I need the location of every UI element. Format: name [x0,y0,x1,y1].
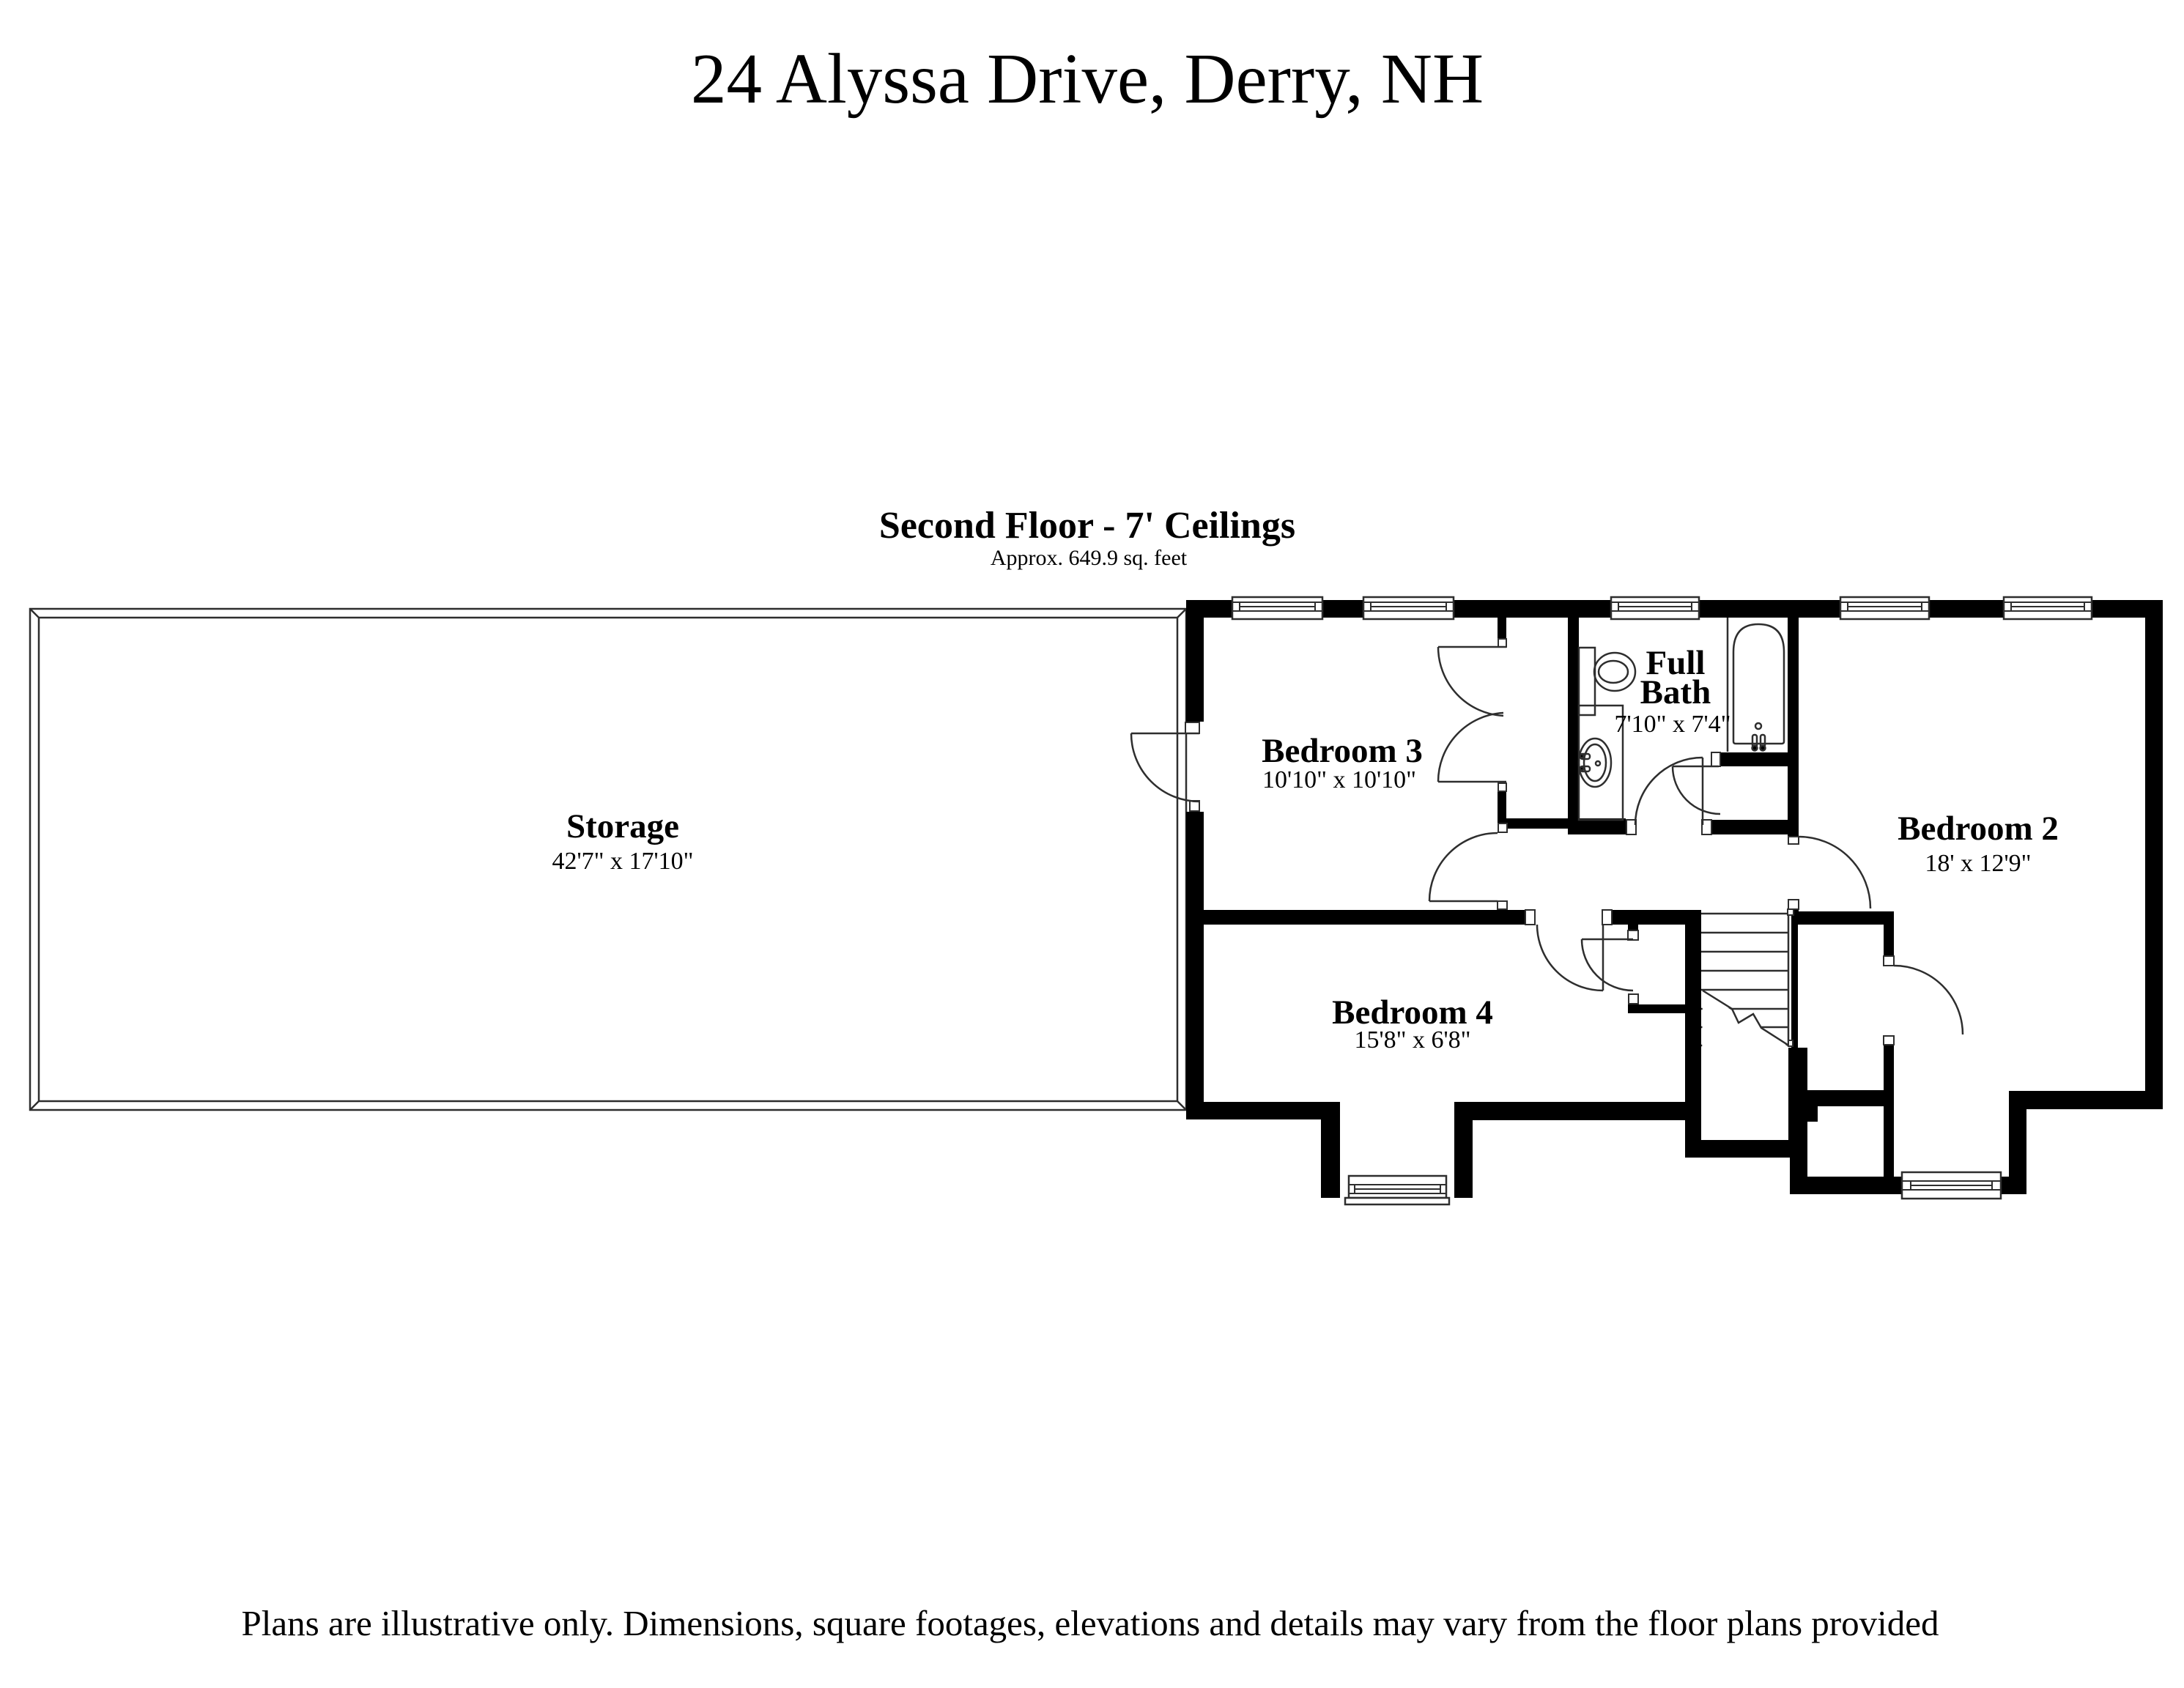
svg-text:7'10" x 7'4": 7'10" x 7'4" [1614,711,1730,738]
svg-text:Bath: Bath [1640,673,1711,711]
svg-text:Bedroom 2: Bedroom 2 [1898,810,2059,848]
svg-text:10'10" x 10'10": 10'10" x 10'10" [1262,766,1416,793]
svg-text:Bedroom 3: Bedroom 3 [1262,732,1423,770]
svg-text:Approx. 649.9 sq. feet: Approx. 649.9 sq. feet [991,546,1188,570]
svg-text:Plans are illustrative only. D: Plans are illustrative only. Dimensions,… [242,1603,1939,1643]
svg-text:42'7" x 17'10": 42'7" x 17'10" [552,848,693,875]
svg-text:Storage: Storage [566,807,679,845]
svg-text:15'8" x 6'8": 15'8" x 6'8" [1354,1026,1470,1054]
svg-text:24 Alyssa Drive, Derry, NH: 24 Alyssa Drive, Derry, NH [691,40,1484,118]
svg-text:18' x 12'9": 18' x 12'9" [1925,850,2031,877]
svg-text:Second Floor - 7' Ceilings: Second Floor - 7' Ceilings [879,505,1295,547]
